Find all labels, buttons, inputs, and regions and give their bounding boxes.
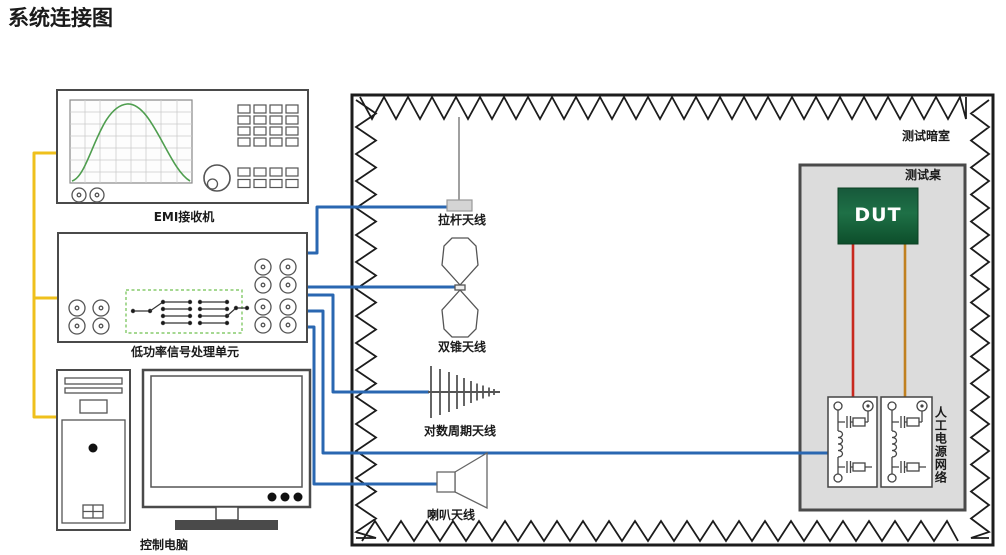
power-button [89, 444, 98, 453]
rod-base [447, 200, 472, 211]
system-connection-diagram: 系统连接图 EMI接收机 低功率信号处理单元 控制电脑 拉杆天线 双锥天线 对数… [0, 0, 1006, 555]
computer-label: 控制电脑 [136, 538, 192, 552]
monitor-base [175, 520, 278, 530]
rod-antenna-label: 拉杆天线 [430, 213, 494, 227]
monitor-buttons [268, 493, 303, 502]
emi-receiver-panel [57, 90, 308, 203]
horn-antenna-label: 喇叭天线 [419, 508, 483, 522]
monitor-stand [216, 507, 238, 520]
table-label: 测试桌 [893, 168, 941, 182]
signal-unit-panel [58, 233, 307, 342]
biconical-antenna-label: 双锥天线 [430, 340, 494, 354]
monitor-screen [151, 376, 302, 487]
signal-unit-label: 低功率信号处理单元 [121, 345, 249, 359]
computer-tower [57, 370, 130, 530]
dut-label: DUT [838, 188, 918, 243]
page-title: 系统连接图 [8, 6, 113, 31]
yellow-control-cable [34, 153, 57, 417]
log-periodic-antenna-label: 对数周期天线 [412, 424, 508, 438]
emi-receiver-label: EMI接收机 [146, 210, 222, 224]
diagram-graphics [0, 0, 1006, 555]
lisn-label: 人工电源网络 [933, 400, 947, 490]
computer-monitor [143, 370, 310, 530]
chamber-label: 测试暗室 [878, 129, 950, 143]
